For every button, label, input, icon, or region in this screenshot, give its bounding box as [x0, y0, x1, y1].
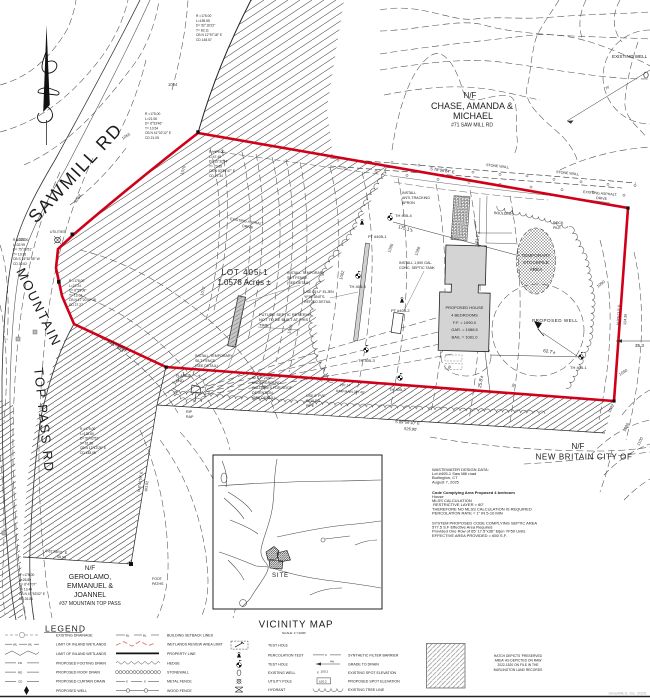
svg-text:VICINITY MAP: VICINITY MAP	[259, 620, 334, 631]
svg-text:INSTALL 1,500 GAL.CONC. SEPTIC: INSTALL 1,500 GAL.CONC. SEPTIC TANK	[399, 261, 435, 270]
svg-text:PROPERTY LINE: PROPERTY LINE	[167, 652, 196, 656]
svg-text:WL: WL	[13, 643, 18, 647]
svg-text:526.90': 526.90'	[404, 426, 418, 432]
svg-text:1064: 1064	[168, 82, 178, 87]
svg-text:MICHAEL: MICHAEL	[453, 111, 493, 121]
svg-text:N/F: N/F	[572, 442, 585, 451]
svg-text:PT #405-2: PT #405-2	[391, 308, 410, 313]
svg-text:SYNTHETIC FILTER BARRIER: SYNTHETIC FILTER BARRIER	[348, 653, 399, 657]
svg-text:x: x	[126, 680, 128, 684]
svg-text:WETLANDS REVIEW AREA LIMIT: WETLANDS REVIEW AREA LIMIT	[167, 643, 224, 647]
svg-text:UTILITIES: UTILITIES	[50, 230, 66, 234]
svg-text:N/F: N/F	[85, 565, 96, 572]
svg-text:TH 405-5: TH 405-5	[349, 284, 366, 289]
svg-text:NEW BRITAIN CITY OF: NEW BRITAIN CITY OF	[536, 453, 633, 462]
svg-text:TEST HOLE: TEST HOLE	[268, 662, 289, 666]
svg-text:59.59: 59.59	[57, 555, 66, 560]
svg-text:PROPOSED WELL: PROPOSED WELL	[56, 689, 87, 693]
svg-text:BL: BL	[143, 633, 147, 637]
svg-text:N/F: N/F	[464, 91, 477, 100]
svg-text:EXISTING TREE LINE: EXISTING TREE LINE	[348, 688, 385, 692]
svg-text:EXISTING WELL: EXISTING WELL	[268, 671, 296, 675]
svg-text:4%: 4%	[330, 660, 335, 664]
svg-text:HYDRANT: HYDRANT	[268, 688, 286, 692]
svg-text:PERCOLATION TEST: PERCOLATION TEST	[268, 653, 304, 657]
svg-text:1020: 1020	[16, 237, 26, 242]
svg-text:EXISTING DRAINAGE: EXISTING DRAINAGE	[56, 633, 93, 637]
svg-text:LOT 405-1: LOT 405-1	[221, 268, 268, 277]
svg-text:EXISTING SPOT ELEVATION: EXISTING SPOT ELEVATION	[348, 671, 397, 675]
svg-text:Code Complying Area Proposed 4: Code Complying Area Proposed 4 bedroom	[432, 490, 515, 495]
svg-text:GEROLAMO,: GEROLAMO,	[69, 574, 111, 581]
svg-text:PT #405-1: PT #405-1	[368, 234, 387, 239]
svg-text:TEST HOLE: TEST HOLE	[268, 644, 289, 648]
svg-text:HEDGE: HEDGE	[167, 661, 180, 665]
svg-text:124.39: 124.39	[623, 314, 628, 325]
svg-text:LEGEND: LEGEND	[45, 623, 86, 633]
svg-text:SITE: SITE	[272, 572, 289, 579]
svg-text:STONEWALL: STONEWALL	[167, 671, 189, 675]
svg-text:BUILDING SETBACK LINES: BUILDING SETBACK LINES	[167, 633, 214, 637]
svg-text:TH 405-1: TH 405-1	[570, 365, 587, 370]
svg-text:287.14': 287.14'	[340, 383, 351, 388]
svg-text:1.0578 Acres ±: 1.0578 Acres ±	[217, 278, 271, 287]
svg-text:PROPOSED SPOT ELEVATION: PROPOSED SPOT ELEVATION	[348, 680, 400, 684]
svg-text:SmartMLS, Inc. 2025: SmartMLS, Inc. 2025	[608, 691, 646, 696]
svg-text:JOANNEL: JOANNEL	[74, 592, 106, 599]
svg-text:PROPOSED ROOF DRAIN: PROPOSED ROOF DRAIN	[56, 671, 100, 675]
svg-text:GRADE TO DRAIN: GRADE TO DRAIN	[348, 662, 379, 666]
svg-text:#37 MOUNTAIN TOP PASS: #37 MOUNTAIN TOP PASS	[59, 601, 121, 607]
svg-text:100.2: 100.2	[319, 679, 327, 683]
svg-text:100.2: 100.2	[321, 670, 329, 674]
svg-text:x: x	[317, 671, 319, 675]
svg-text:PROPOSED FOOTING DRAIN: PROPOSED FOOTING DRAIN	[56, 661, 106, 665]
svg-text:EXISTING WELL: EXISTING WELL	[612, 54, 648, 59]
svg-text:TH 405-2: TH 405-2	[389, 387, 406, 392]
svg-text:x: x	[144, 680, 146, 684]
svg-text:WOOD FENCE: WOOD FENCE	[167, 689, 192, 693]
svg-text:METAL FENCE: METAL FENCE	[167, 680, 192, 684]
svg-text:EMMANUEL &: EMMANUEL &	[67, 583, 113, 590]
svg-text:CHASE, AMANDA &: CHASE, AMANDA &	[431, 101, 513, 111]
svg-text:TH 405-4: TH 405-4	[395, 213, 412, 218]
svg-text:TH 405-3: TH 405-3	[358, 358, 375, 363]
svg-text:UTILITY POLE: UTILITY POLE	[268, 680, 293, 684]
svg-text:#71 SAW MILL RD: #71 SAW MILL RD	[451, 123, 493, 129]
svg-text:35.3: 35.3	[635, 343, 644, 348]
svg-text:WL: WL	[28, 643, 33, 647]
svg-text:SCALE: 1"=1000': SCALE: 1"=1000'	[282, 631, 306, 635]
svg-text:PROPOSED CURTAIN DRAIN: PROPOSED CURTAIN DRAIN	[56, 680, 106, 684]
svg-text:BL: BL	[126, 633, 130, 637]
svg-text:LIMIT OF INLAND WETLANDS: LIMIT OF INLAND WETLANDS	[56, 652, 107, 656]
svg-text:HATCH DEPICTS 'PRESERVEDAREA': HATCH DEPICTS 'PRESERVEDAREA' AS DEPICTE…	[494, 654, 543, 672]
svg-text:x: x	[325, 653, 327, 657]
svg-text:PROPOSED WELL: PROPOSED WELL	[532, 318, 578, 323]
svg-text:LIMIT OF INLAND WETLANDS: LIMIT OF INLAND WETLANDS	[56, 643, 107, 647]
